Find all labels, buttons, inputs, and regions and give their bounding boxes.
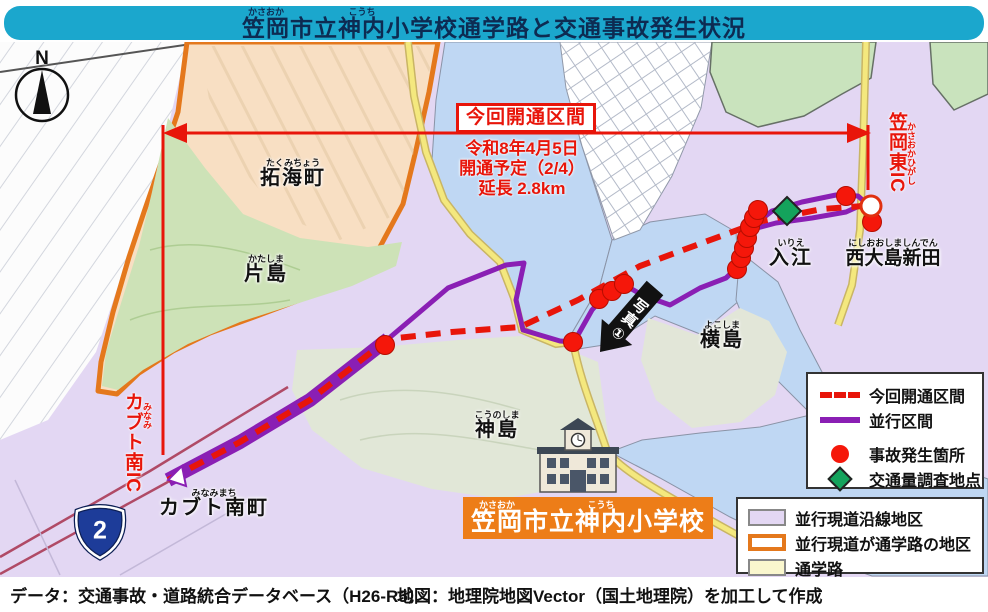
opening-details: 令和8年4月5日 開通予定（2/4） 延長 2.8km	[444, 139, 600, 199]
legend-item: 並行区間	[820, 407, 982, 432]
page-title: 小学校通学路と交通事故発生状況	[386, 17, 746, 40]
ic-terminus-east	[861, 196, 881, 216]
legend-routes-markers: 今回開通区間 並行区間 事故発生箇所 交通量調査地点	[806, 372, 984, 489]
place-label-kabuto-minamimachi: みなみまち カブト南町	[159, 488, 269, 519]
page-title: 神内	[338, 17, 386, 40]
infographic-root: かさおか笠岡 市立 こうち神内 小学校通学路と交通事故発生状況 N 今回開通区間…	[0, 0, 988, 612]
opening-plan: 開通予定（2/4）	[444, 159, 600, 179]
legend-item: 通学路	[748, 555, 982, 580]
place-label-katashima: かたしま 片島	[244, 254, 288, 285]
page-title: 笠岡	[242, 17, 290, 40]
place-label-nishiooshimashinden: にしおおしましんでん 西大島新田	[845, 238, 940, 269]
opening-date: 令和8年4月5日	[444, 139, 600, 159]
opening-length: 延長 2.8km	[444, 179, 600, 199]
lavender-swatch	[748, 509, 786, 526]
legend-item: 交通量調査地点	[820, 466, 982, 491]
legend-item: 並行現道が通学路の地区	[748, 530, 982, 555]
legend-area-types: 並行現道沿線地区 並行現道が通学路の地区 通学路	[736, 497, 984, 574]
legend-item: 今回開通区間	[820, 382, 982, 407]
place-label-takumicho: たくみちょう 拓海町	[260, 158, 326, 189]
map-source-text: 地図：地理院地図Vector（国土地理院）を加工して作成	[397, 582, 822, 607]
orange-outline-swatch	[748, 534, 786, 551]
accident-dot-sample	[831, 445, 849, 463]
place-label-kasaoka-higashi-ic: 笠岡東IC かさおかひがし	[886, 112, 916, 193]
page-title: 市立	[290, 17, 338, 40]
opening-section-label: 今回開通区間	[456, 103, 596, 133]
place-label-kounoshima: こうのしま 神島	[474, 410, 519, 441]
data-source-text: データ：交通事故・道路統合データベース（H26-R5）	[10, 582, 425, 607]
yellow-swatch	[748, 559, 786, 576]
route-2-badge-number: 2	[93, 517, 107, 546]
place-label-kabuto-minami-ic: カブト南IC みなみ	[122, 392, 152, 493]
legend-item: 事故発生箇所	[820, 441, 982, 466]
legend-item: 並行現道沿線地区	[748, 505, 982, 530]
survey-diamond-sample	[827, 466, 852, 491]
school-name-label: かさおか笠岡 市立 こうち神内 小学校	[463, 497, 713, 539]
place-label-yokoshima: よこしま 横島	[700, 320, 744, 351]
compass-north-label: N	[35, 48, 49, 70]
title-bar: かさおか笠岡 市立 こうち神内 小学校通学路と交通事故発生状況	[4, 6, 984, 40]
purple-line-sample	[820, 417, 860, 423]
red-dashed-line-sample	[820, 392, 860, 398]
place-label-irie: いりえ 入江	[769, 238, 813, 269]
